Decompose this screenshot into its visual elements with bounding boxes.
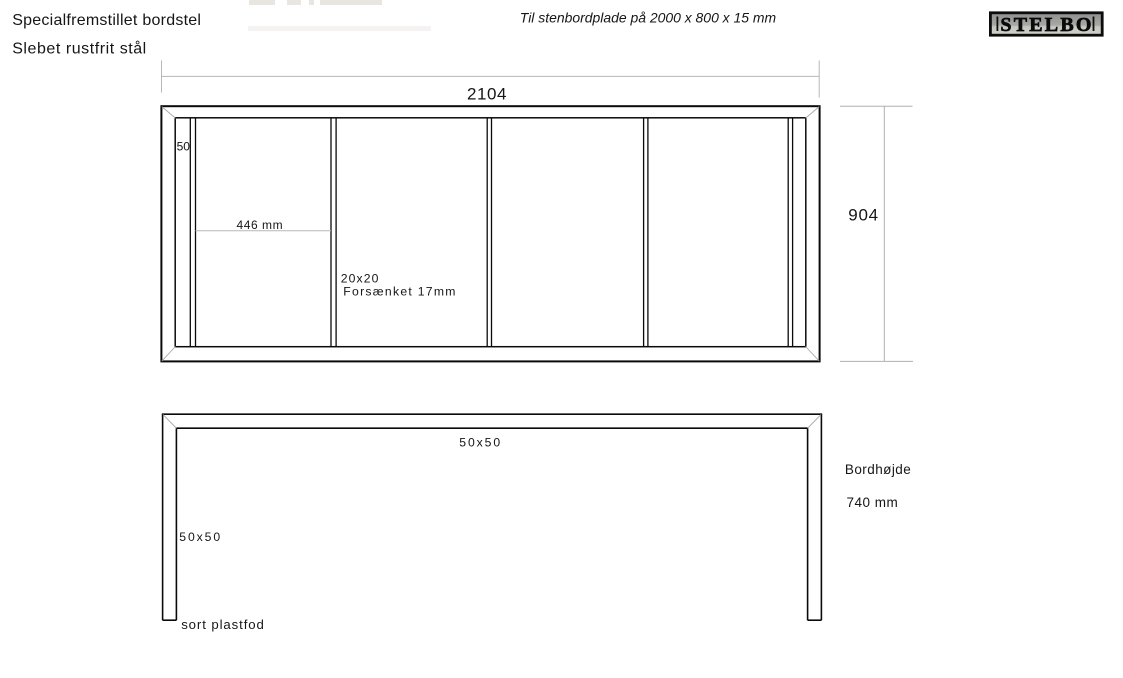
svg-text:50x50: 50x50	[459, 436, 502, 450]
svg-text:Specialfremstillet bordstel: Specialfremstillet bordstel	[12, 12, 201, 29]
svg-text:STELBO: STELBO	[1000, 14, 1093, 36]
svg-text:904: 904	[848, 206, 878, 225]
svg-text:Slebet rustfrit stål: Slebet rustfrit stål	[12, 39, 147, 57]
svg-text:Bordhøjde: Bordhøjde	[845, 462, 911, 477]
svg-text:740 mm: 740 mm	[847, 495, 899, 510]
svg-text:2104: 2104	[467, 85, 507, 104]
svg-text:446 mm: 446 mm	[237, 218, 284, 232]
svg-text:Forsænket 17mm: Forsænket 17mm	[343, 285, 456, 299]
svg-text:50x50: 50x50	[179, 530, 222, 544]
svg-text:Til stenbordplade på 2000 x 80: Til stenbordplade på 2000 x 800 x 15 mm	[520, 9, 776, 25]
svg-text:20x20: 20x20	[341, 272, 380, 286]
svg-text:sort plastfod: sort plastfod	[181, 617, 265, 632]
svg-text:50: 50	[177, 139, 191, 153]
